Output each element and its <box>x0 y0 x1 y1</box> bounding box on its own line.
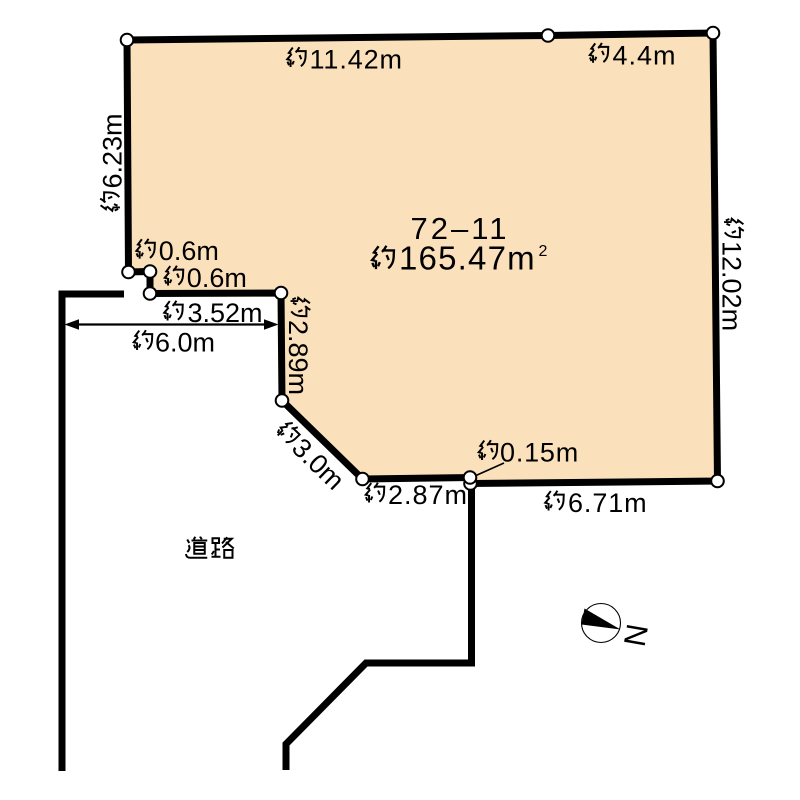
svg-text:2.89m: 2.89m <box>283 320 313 395</box>
svg-text:6.23m: 6.23m <box>98 113 128 188</box>
svg-text:3.52m: 3.52m <box>188 298 263 328</box>
svg-text:11.42m: 11.42m <box>310 45 403 75</box>
svg-text:4.4m: 4.4m <box>613 40 677 70</box>
svg-text:0.6m: 0.6m <box>159 236 219 266</box>
svg-text:12.02m: 12.02m <box>717 241 747 331</box>
svg-text:165.47m: 165.47m <box>399 240 536 277</box>
svg-text:N: N <box>617 621 654 649</box>
svg-text:6.71m: 6.71m <box>568 488 648 518</box>
svg-text:2: 2 <box>539 243 548 260</box>
svg-text:6.0m: 6.0m <box>155 328 215 358</box>
svg-text:0.6m: 0.6m <box>187 263 247 293</box>
svg-text:2.87m: 2.87m <box>388 480 468 510</box>
svg-text:0.15m: 0.15m <box>500 438 579 468</box>
